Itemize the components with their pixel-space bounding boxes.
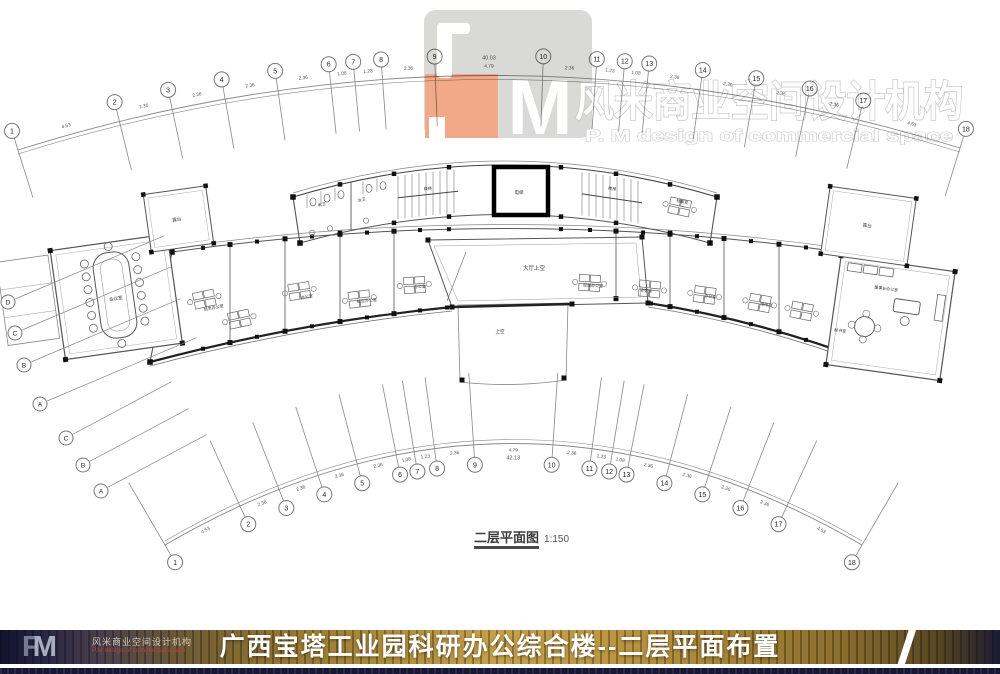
page: 1234567891011121314151617184.532.362.362… <box>0 0 1000 674</box>
logo-f-stem-icon <box>437 23 452 78</box>
footer-bar: FM 风米商业空间设计机构 P.M design of commercial s… <box>0 630 1000 664</box>
drawing-title: 广西宝塔工业园科研办公综合楼--二层平面布置 <box>0 630 1000 664</box>
logo-m-letter: M <box>508 63 573 151</box>
plan-caption-text: 二层平面图 <box>474 530 539 549</box>
logo-white-notch <box>429 117 445 138</box>
watermark-company-en: P. M design of commercial space <box>585 127 953 145</box>
plan-caption: 二层平面图1:150 <box>474 527 569 547</box>
footer-base-strip <box>0 668 1000 674</box>
watermark-logo: M <box>424 10 592 151</box>
watermark-company-cn: 风米商业空间设计机构 <box>575 78 963 125</box>
plan-scale: 1:150 <box>544 534 569 545</box>
